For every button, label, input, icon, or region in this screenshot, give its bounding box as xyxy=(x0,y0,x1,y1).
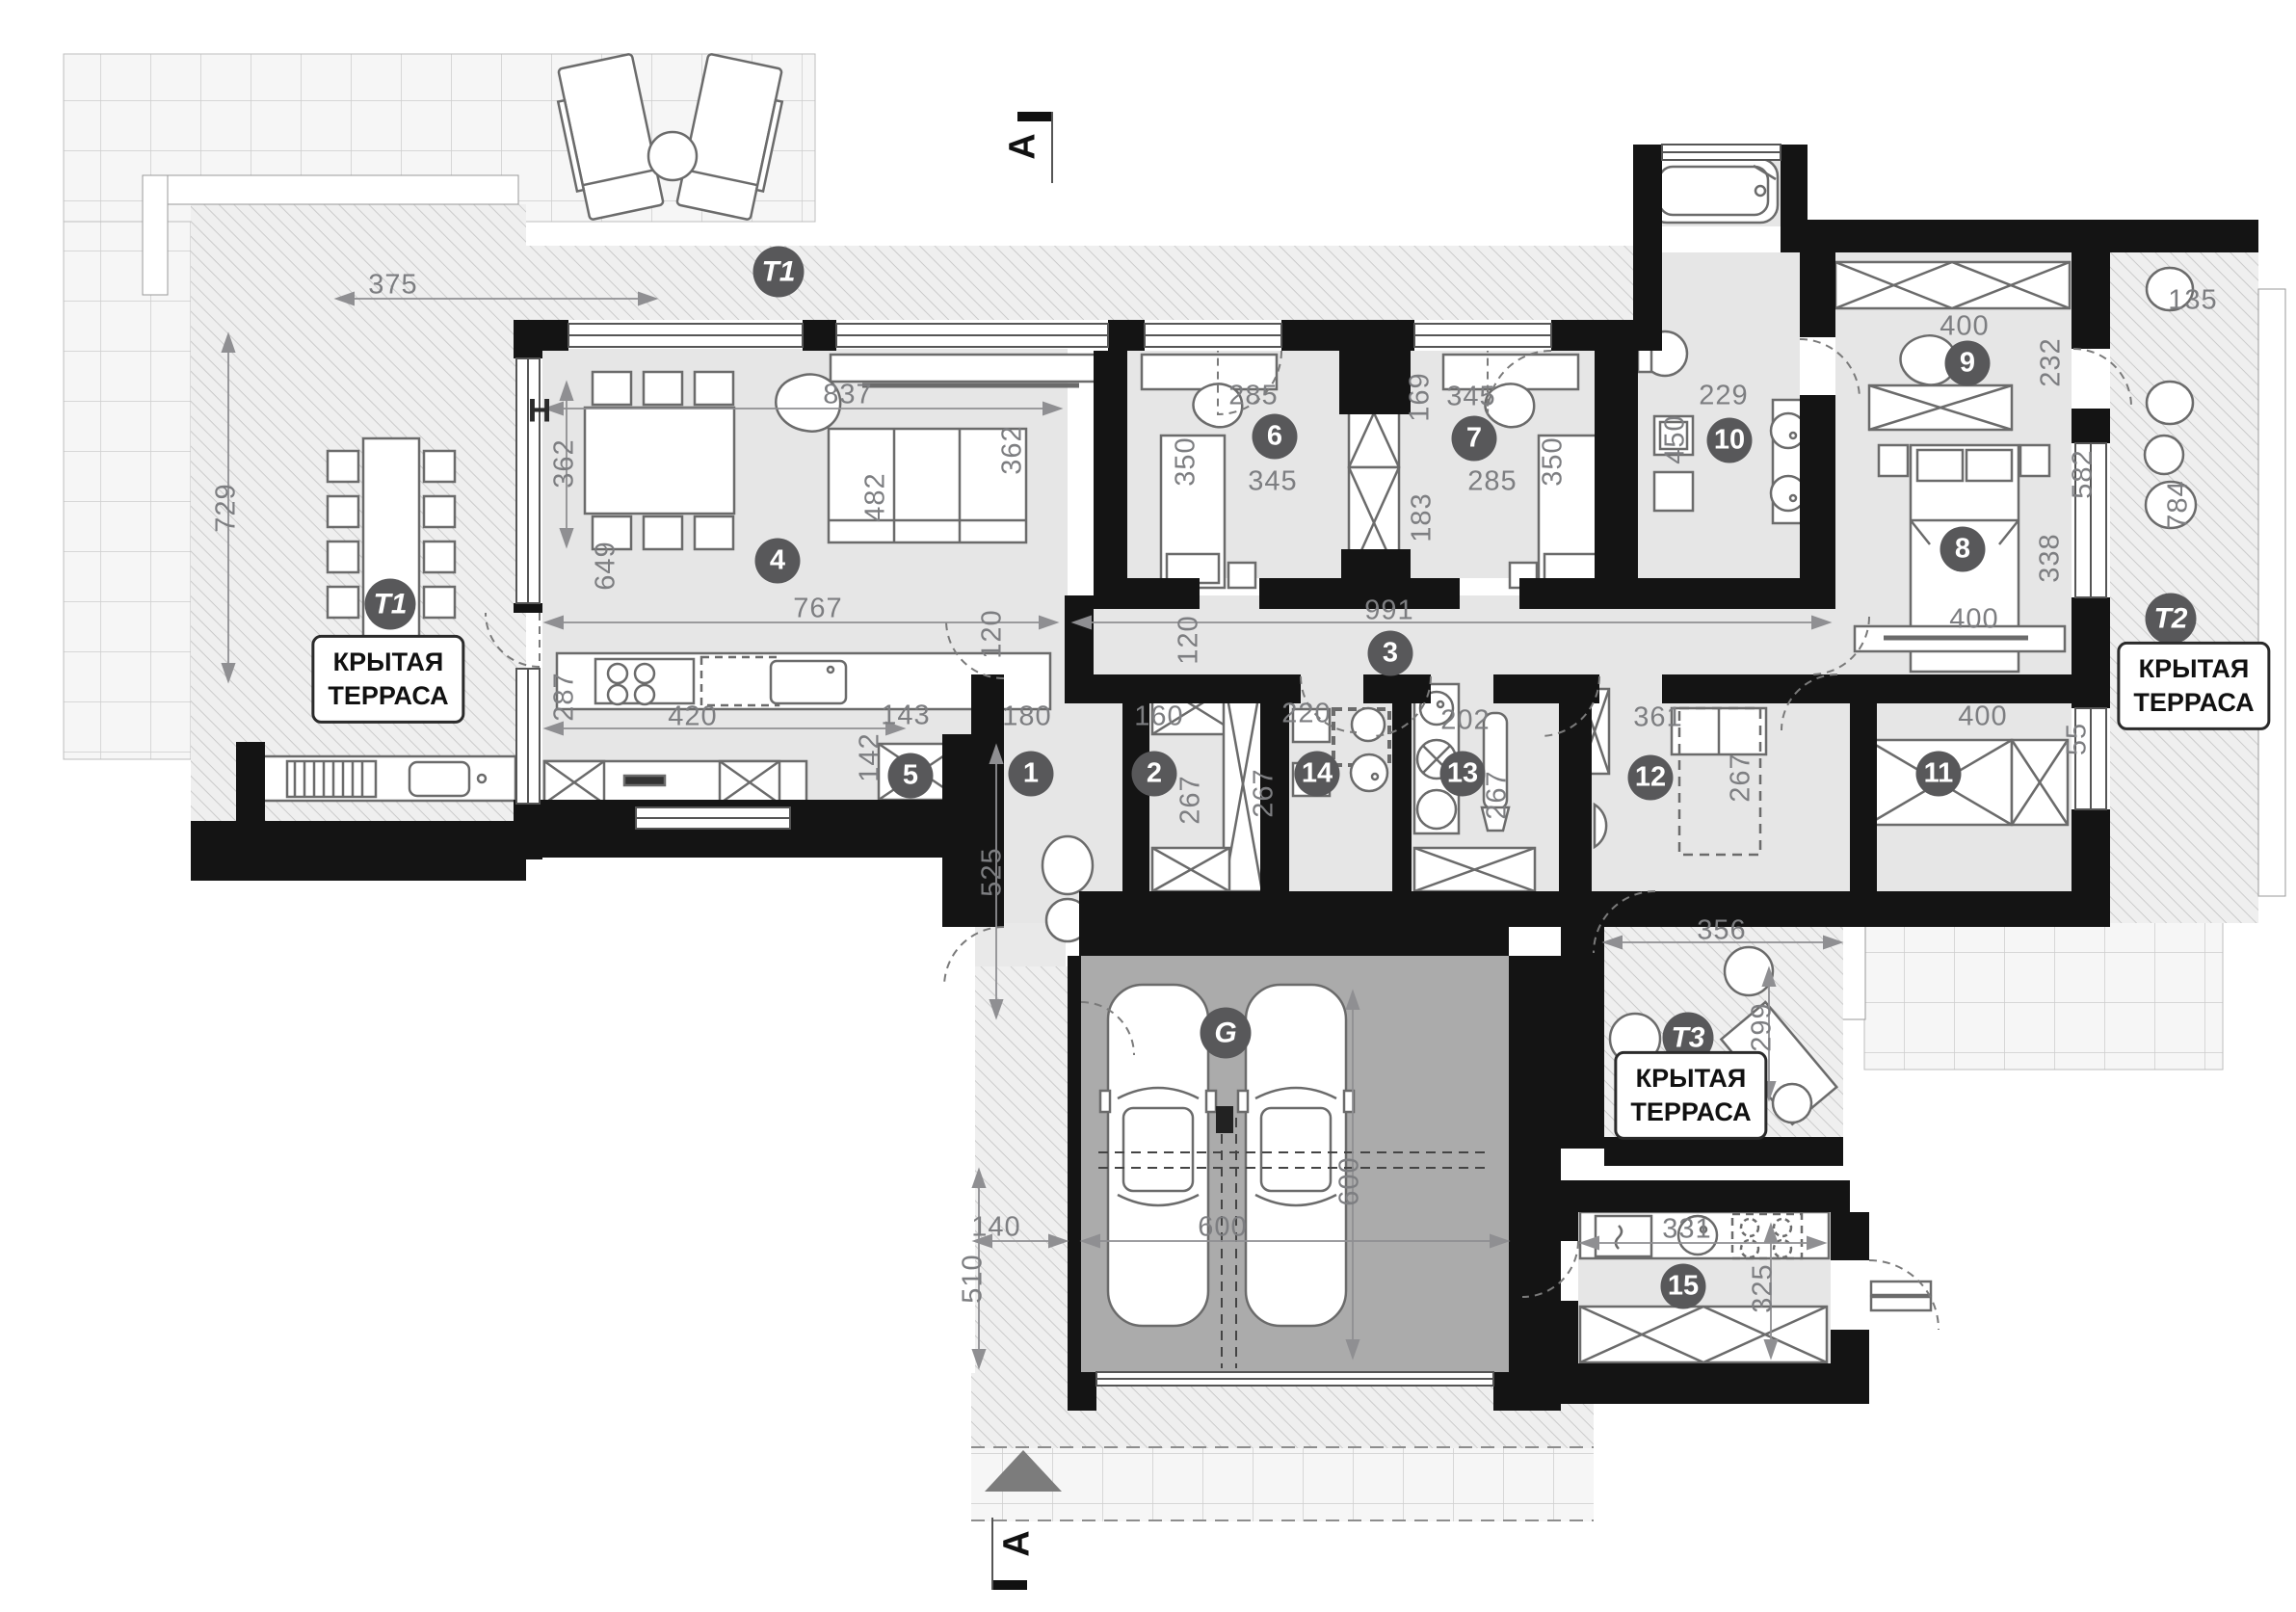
room-marker-5: 5 xyxy=(888,753,934,799)
dimension-label: 450 xyxy=(1660,414,1692,463)
dimension-label: 338 xyxy=(2035,533,2067,582)
covered-terrace-label: КРЫТАЯТЕРРАСА xyxy=(2117,642,2270,730)
dimension-label: 267 xyxy=(1482,770,1514,819)
dimension-label: 287 xyxy=(549,672,581,721)
dimension-label: 160 xyxy=(1134,701,1183,733)
dimension-label: 220 xyxy=(1281,699,1331,730)
dimension-label: 649 xyxy=(591,541,622,590)
dimension-label: 767 xyxy=(793,594,842,625)
room-marker-4: 4 xyxy=(755,539,801,584)
dimension-label: 784 xyxy=(2163,480,2195,529)
dimension-label: 361 xyxy=(1633,702,1682,734)
dimension-label: 400 xyxy=(1940,311,1989,343)
room-marker-11: 11 xyxy=(1916,752,1962,797)
dimension-label: 142 xyxy=(855,732,886,781)
dimension-label: 350 xyxy=(1538,436,1570,486)
dimension-label: 600 xyxy=(1198,1212,1247,1244)
dimension-label: 120 xyxy=(977,609,1009,658)
dimension-label: 375 xyxy=(368,270,417,302)
dimension-label: 183 xyxy=(1407,492,1438,542)
covered-terrace-label: КРЫТАЯТЕРРАСА xyxy=(1614,1051,1767,1140)
dimension-label: 350 xyxy=(1171,436,1202,486)
dimension-label: 140 xyxy=(971,1212,1020,1244)
dimension-label: 285 xyxy=(1228,381,1278,412)
dimension-label: 482 xyxy=(860,472,892,521)
room-marker-7: 7 xyxy=(1452,416,1497,462)
dimension-label: 331 xyxy=(1662,1214,1711,1246)
dimension-label: 345 xyxy=(1446,382,1495,413)
dimension-label: 345 xyxy=(1248,466,1297,498)
dimension-label: 202 xyxy=(1440,705,1490,737)
dimension-label: 232 xyxy=(2036,337,2068,386)
room-marker-T2: T2 xyxy=(2146,594,2197,645)
room-marker-1: 1 xyxy=(1009,752,1054,797)
dimension-label: 600 xyxy=(1334,1156,1366,1205)
dimension-label: 285 xyxy=(1467,466,1517,498)
dimension-label: 120 xyxy=(1174,615,1205,664)
room-marker-13: 13 xyxy=(1440,752,1486,797)
dimension-label: 356 xyxy=(1697,915,1746,947)
room-marker-9: 9 xyxy=(1945,341,1991,386)
floor-plan: H 37572983736248236264976712012042028714… xyxy=(0,0,2296,1612)
door-h-label: H xyxy=(528,393,552,431)
room-marker-8: 8 xyxy=(1940,527,1986,572)
dimension-label: 729 xyxy=(211,483,243,532)
dimension-label: 837 xyxy=(823,380,872,411)
dimension-label: 135 xyxy=(2168,285,2217,317)
section-letter: A xyxy=(997,1530,1039,1556)
dimension-label: 267 xyxy=(1726,753,1757,802)
room-marker-G: G xyxy=(1201,1008,1252,1059)
dimension-label: 400 xyxy=(1949,604,1998,636)
room-marker-14: 14 xyxy=(1295,752,1340,797)
dimension-label: 420 xyxy=(668,701,717,733)
room-marker-10: 10 xyxy=(1707,418,1753,463)
dimension-label: 362 xyxy=(549,438,581,488)
room-marker-3: 3 xyxy=(1368,631,1413,676)
dimension-label: 169 xyxy=(1405,372,1437,421)
room-marker-T1: T1 xyxy=(753,247,805,298)
dimension-label: 267 xyxy=(1175,775,1207,824)
dimension-label: 143 xyxy=(881,700,930,732)
dimension-label: 525 xyxy=(977,847,1009,896)
dimension-label: 362 xyxy=(997,425,1029,474)
dimension-label: 55 xyxy=(2062,723,2094,755)
dimension-label: 510 xyxy=(958,1254,990,1303)
dimension-label: 180 xyxy=(1002,701,1051,733)
room-marker-15: 15 xyxy=(1661,1264,1706,1309)
labels-layer: H 37572983736248236264976712012042028714… xyxy=(0,0,2296,1612)
dimension-label: 229 xyxy=(1699,381,1748,412)
room-marker-12: 12 xyxy=(1628,755,1674,801)
covered-terrace-label: КРЫТАЯТЕРРАСА xyxy=(311,635,464,724)
room-marker-T1: T1 xyxy=(365,579,416,630)
section-letter: A xyxy=(1003,133,1044,159)
dimension-label: 299 xyxy=(1747,1002,1779,1051)
room-marker-6: 6 xyxy=(1253,414,1298,460)
room-marker-2: 2 xyxy=(1132,752,1177,797)
dimension-label: 267 xyxy=(1249,768,1280,817)
dimension-label: 400 xyxy=(1958,701,2007,733)
dimension-label: 582 xyxy=(2068,449,2099,498)
dimension-label: 325 xyxy=(1748,1263,1780,1312)
dimension-label: 991 xyxy=(1364,595,1413,627)
